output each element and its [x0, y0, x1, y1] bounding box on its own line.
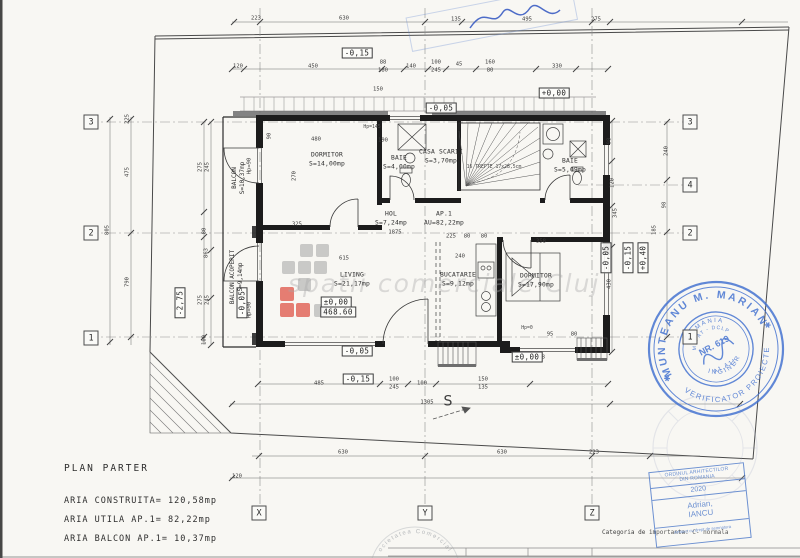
notes-block: PLAN PARTER ARIA CONSTRUITA= 120,58mpARI…: [64, 463, 217, 553]
compass-arrow: [433, 407, 470, 419]
ramp-hatch: [150, 352, 231, 433]
scan-edge: [0, 0, 3, 558]
windows: [258, 117, 609, 352]
plan-title: PLAN PARTER: [64, 463, 217, 474]
balcony-edge: [223, 117, 256, 347]
area-lines: ARIA CONSTRUITA= 120,58mpARIA UTILA AP.1…: [64, 496, 217, 544]
round-stamp: MUNTEANU M. MARIAN VERIFICATOR PROIECTE …: [625, 258, 800, 439]
area-text: ARIA UTILA AP.1= 82,22mp: [64, 515, 217, 525]
area-text: ARIA BALCON AP.1= 10,37mp: [64, 534, 217, 544]
area-text: ARIA CONSTRUITA= 120,58mp: [64, 496, 217, 506]
staircase: [459, 123, 540, 190]
axis-lines: [88, 8, 697, 505]
terrace-steps: [233, 97, 606, 116]
walls: [252, 115, 610, 353]
dimension-ticks: [107, 19, 745, 481]
bathroom-fixtures: [398, 124, 426, 187]
watermark-text: spatii comerciale Cluj: [288, 269, 600, 298]
pen-signature: [406, 0, 577, 51]
architect-stamp: ORDINUL ARHITECTILOR DIN ROMANIA 2020 Ad…: [648, 462, 751, 548]
drawing-sheet: spatii comerciale Cluj Societatea Comerc…: [0, 0, 800, 558]
